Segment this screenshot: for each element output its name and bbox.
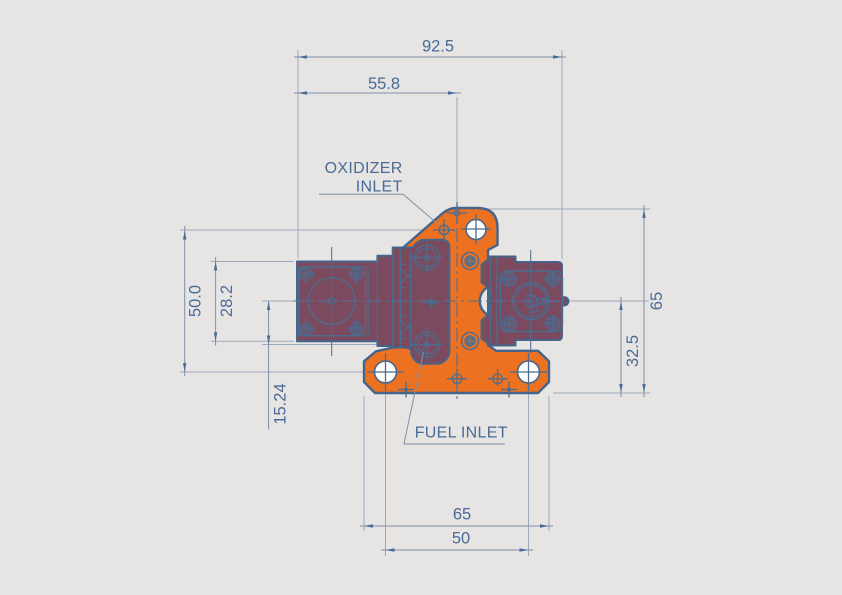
svg-text:OXIDIZER: OXIDIZER <box>325 160 403 177</box>
svg-text:INLET: INLET <box>356 179 403 196</box>
svg-text:28.2: 28.2 <box>218 285 236 317</box>
svg-text:FUEL INLET: FUEL INLET <box>415 425 508 442</box>
svg-text:50: 50 <box>452 530 470 548</box>
svg-text:50.0: 50.0 <box>187 285 205 317</box>
svg-text:55.8: 55.8 <box>368 75 400 93</box>
svg-text:15.24: 15.24 <box>272 383 290 424</box>
svg-text:92.5: 92.5 <box>422 38 454 56</box>
svg-text:65: 65 <box>648 292 666 310</box>
svg-text:32.5: 32.5 <box>624 335 642 367</box>
svg-text:65: 65 <box>453 506 471 524</box>
